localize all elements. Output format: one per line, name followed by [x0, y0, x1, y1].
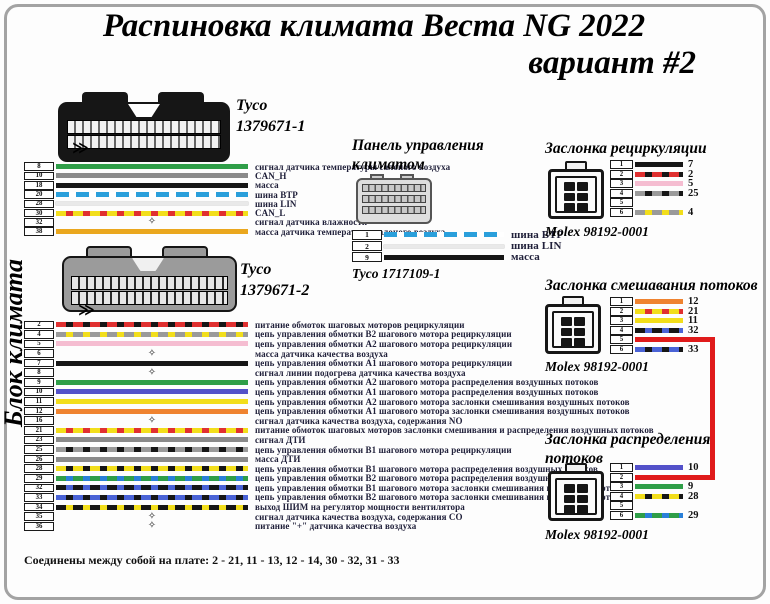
pin-label: шина LIN [511, 240, 562, 252]
pin-row: 425 [610, 189, 699, 199]
panel-pin-table: 1шина ВТР2шина LIN9масса [352, 229, 563, 263]
wire-black-blue [635, 328, 683, 333]
no-wire-star-icon: ✧ [56, 521, 248, 531]
wire-gray [56, 457, 248, 462]
pin-number: 8 [24, 368, 54, 377]
pin-number: 2 [610, 473, 633, 482]
wire-orange [56, 409, 248, 414]
wire-black-yellow [56, 505, 248, 510]
wire-orange [635, 299, 683, 304]
molex-pins [564, 484, 588, 514]
pin-number: 1 [610, 160, 633, 169]
wire-pink [56, 341, 248, 346]
pin-number: 30 [24, 209, 54, 218]
flap-mixing-connector-caption: Molex 98192-0001 [545, 359, 649, 375]
pin-row: 5 [610, 501, 699, 511]
pin-number: 4 [610, 326, 633, 335]
pin-number: 2 [352, 241, 382, 251]
connector2-part: 1379671-2 [240, 281, 309, 302]
pin-label: цепь управления обмотки А2 шагового мото… [255, 397, 630, 407]
pin-number: 4 [610, 492, 633, 501]
wire-green [635, 484, 683, 489]
pin-number: 5 [24, 340, 54, 349]
pin-row: 2шина LIN [352, 240, 563, 251]
pin-number: 18 [24, 181, 54, 190]
wire-pink [635, 181, 683, 186]
pin-label: масса [511, 251, 540, 263]
wire-lin [56, 202, 248, 205]
pin-row: 64 [610, 208, 699, 218]
pin-label: цепь управления обмотки А2 шагового мото… [255, 339, 512, 349]
no-wire-star-icon: ✧ [56, 217, 248, 227]
wire-blue-black [635, 347, 683, 352]
tyco-1717109-1-connector-graphic [356, 174, 432, 224]
panel-section-heading: Панель управления климатом [352, 136, 517, 175]
wire-yellow-red [635, 309, 683, 314]
pin-number: 20 [24, 190, 54, 199]
molex-98192-0001-connector-graphic [545, 296, 601, 354]
pin-row: 5 [610, 198, 699, 208]
flap-recirculation-connector-caption: Molex 98192-0001 [545, 224, 649, 240]
target-pin-number: 33 [688, 344, 699, 355]
pin-number: 29 [24, 474, 54, 483]
pin-number: 5 [610, 335, 633, 344]
pin-label: цепь управления обмотки А1 шагового мото… [255, 387, 598, 397]
pin-label: сигнал ДТИ [255, 435, 306, 445]
pin-number: 9 [24, 378, 54, 387]
pin-row: 9цепь управления обмотки А2 шагового мот… [24, 378, 654, 388]
pin-number: 8 [24, 162, 54, 171]
pin-number: 38 [24, 227, 54, 236]
pin-number: 6 [610, 208, 633, 217]
connector1-part: 1379671-1 [236, 117, 305, 138]
wire-red-black [635, 172, 683, 177]
wire-black [384, 255, 504, 260]
pin-number: 28 [24, 464, 54, 473]
pin-row: 110 [610, 463, 699, 473]
pin-number: 5 [610, 198, 633, 207]
pin-number: 16 [24, 416, 54, 425]
wire-gray-yellow [635, 210, 683, 215]
target-pin-number: 32 [688, 325, 699, 336]
pin-number: 32 [24, 218, 54, 227]
pin-number: 34 [24, 503, 54, 512]
board-connections-note: Соединены между собой на плате: 2 - 21, … [24, 553, 399, 568]
flap-distribution-pin-table: 1102394285629 [610, 463, 699, 520]
pin-number: 26 [24, 455, 54, 464]
pin-label: сигнал датчика качества воздуха, содержа… [255, 512, 463, 522]
pin-number: 21 [24, 426, 54, 435]
wire-gray-black [635, 191, 683, 196]
pin-number: 6 [610, 511, 633, 520]
pin-row: 221 [610, 307, 699, 317]
target-pin-number: 4 [688, 207, 693, 218]
wire-gray [56, 173, 248, 178]
pin-row: 112 [610, 297, 699, 307]
pin-number: 7 [24, 359, 54, 368]
wire-blue-white [56, 192, 248, 197]
wire-green [56, 380, 248, 385]
molex-98192-0001-connector-graphic [548, 463, 604, 521]
pin-number: 2 [24, 321, 54, 330]
red-jumper-wire-bottom [658, 475, 715, 480]
target-pin-number: 28 [688, 491, 699, 502]
wire-yellow [56, 399, 248, 404]
pin-number: 2 [610, 170, 633, 179]
no-wire-star-icon: ✧ [56, 349, 248, 359]
pin-row: 633 [610, 345, 699, 355]
connector2-label: Tyco 1379671-2 [240, 260, 309, 302]
wire-black [56, 183, 248, 188]
wire-black-blue [56, 485, 248, 490]
wire-gray [56, 437, 248, 442]
wire-yellow-black [56, 466, 248, 471]
pin-number: 2 [610, 307, 633, 316]
pin-number: 6 [610, 345, 633, 354]
title-block: Распиновка климата Веста NG 2022 вариант… [40, 8, 708, 82]
wire-violet [635, 465, 683, 470]
flap-mixing-heading: Заслонка смешавания потоков [545, 276, 758, 295]
pin-label: цепь управления обмотки В2 шагового мото… [255, 329, 512, 339]
pin-row: 428 [610, 492, 699, 502]
wire-amber [56, 229, 248, 234]
pin-number: 9 [352, 252, 382, 262]
pin-number: 3 [610, 482, 633, 491]
wire-violet [56, 389, 248, 394]
flap-recirculation-heading: Заслонка рециркуляции [545, 139, 707, 158]
pin-number: 5 [610, 501, 633, 510]
wire-yellow-red [56, 211, 248, 216]
pin-number: 4 [610, 189, 633, 198]
pin-label: сигнал линии подогрева датчика качества … [255, 368, 466, 378]
pin-row: 1шина ВТР [352, 229, 563, 240]
wire-blue-white [384, 232, 504, 237]
pin-number: 10 [24, 172, 54, 181]
pin-number: 6 [24, 349, 54, 358]
pin-row: 311 [610, 316, 699, 326]
pin-label: выход ШИМ на регулятор мощности вентилят… [255, 502, 465, 512]
wire-red-black [56, 322, 248, 327]
pin-row: 16✧сигнал датчика качества воздуха, соде… [24, 416, 654, 426]
wire-black [56, 361, 248, 366]
flap-distribution-connector-caption: Molex 98192-0001 [545, 527, 649, 543]
target-pin-number: 25 [688, 188, 699, 199]
wire-blue-black [56, 495, 248, 500]
pin-number: 1 [610, 463, 633, 472]
pin-number: 1 [352, 230, 382, 240]
no-wire-star-icon: ✧ [56, 368, 248, 378]
connector1-label: Tyco 1379671-1 [236, 96, 305, 138]
pin-row: 35 [610, 179, 699, 189]
pin-label: масса ДТИ [255, 454, 301, 464]
pin-label: цепь управления обмотки А2 шагового мото… [255, 377, 598, 387]
pin-number: 32 [24, 484, 54, 493]
molex-pins [561, 317, 585, 347]
connector1-brand: Tyco [236, 96, 305, 117]
pin-number: 3 [610, 316, 633, 325]
wire-black [635, 162, 683, 167]
pin-row: 10цепь управления обмотки А1 шагового мо… [24, 387, 654, 397]
wire-yellow [635, 318, 683, 323]
page-subtitle: вариант #2 [40, 45, 708, 82]
wire-yellow-black [635, 494, 683, 499]
pin-row: 432 [610, 326, 699, 336]
pin-number: 11 [24, 397, 54, 406]
pin-label: питание обмоток шаговых моторов рециркул… [255, 320, 465, 330]
pin-label: питание "+" датчика качества воздуха [255, 521, 416, 531]
pin-number: 10 [24, 388, 54, 397]
wire-green-blue [635, 513, 683, 518]
pin-row: 22 [610, 170, 699, 180]
pin-label: цепь управления обмотки В2 шагового мото… [255, 473, 598, 483]
pin-number: 1 [610, 297, 633, 306]
molex-98192-0001-connector-graphic [548, 161, 604, 219]
pin-number: 4 [24, 330, 54, 339]
pin-label: цепь управления обмотки А1 шагового мото… [255, 358, 512, 368]
harness-chevron-icon: ≫ [72, 138, 89, 157]
pin-label: цепь управления обмотки А1 шагового мото… [255, 406, 630, 416]
red-jumper-wire-vertical [710, 337, 715, 480]
target-pin-number: 10 [688, 462, 699, 473]
red-jumper-wire-top [658, 337, 715, 342]
harness-chevron-icon: ≫ [78, 300, 95, 319]
wire-lin [384, 245, 504, 248]
flap-recirculation-pin-table: 172235425564 [610, 160, 699, 217]
wire-green-blue [56, 476, 248, 481]
page-title: Распиновка климата Веста NG 2022 [40, 8, 708, 45]
pin-number: 28 [24, 200, 54, 209]
wire-gray-black [56, 447, 248, 452]
pin-label: сигнал датчика качества воздуха, содержа… [255, 416, 463, 426]
pin-number: 25 [24, 445, 54, 454]
pin-row: 629 [610, 511, 699, 521]
molex-pins [564, 182, 588, 212]
pin-row: 9масса [352, 252, 563, 263]
flap-mixing-pin-table: 1122213114325633 [610, 297, 699, 354]
panel-connector-caption: Tyco 1717109-1 [352, 266, 440, 282]
connector2-brand: Tyco [240, 260, 309, 281]
pin-number: 35 [24, 512, 54, 521]
pin-label: масса датчика качества воздуха [255, 349, 388, 359]
pin-row: 17 [610, 160, 699, 170]
target-pin-number: 29 [688, 510, 699, 521]
wire-yellow-red [56, 428, 248, 433]
pin-number: 3 [610, 179, 633, 188]
pin-label: цепь управления обмотки В1 шагового мото… [255, 445, 512, 455]
pin-row: 39 [610, 482, 699, 492]
climate-pinout-diagram: Распиновка климата Веста NG 2022 вариант… [0, 0, 770, 604]
pin-number: 12 [24, 407, 54, 416]
no-wire-star-icon: ✧ [56, 416, 248, 426]
pin-number: 36 [24, 522, 54, 531]
pin-number: 33 [24, 493, 54, 502]
pin-number: 23 [24, 436, 54, 445]
pin-row: 12цепь управления обмотки А1 шагового мо… [24, 406, 654, 416]
wire-green [56, 164, 248, 169]
wire-gray-yellow [56, 332, 248, 337]
pin-row: 11цепь управления обмотки А2 шагового мо… [24, 397, 654, 407]
